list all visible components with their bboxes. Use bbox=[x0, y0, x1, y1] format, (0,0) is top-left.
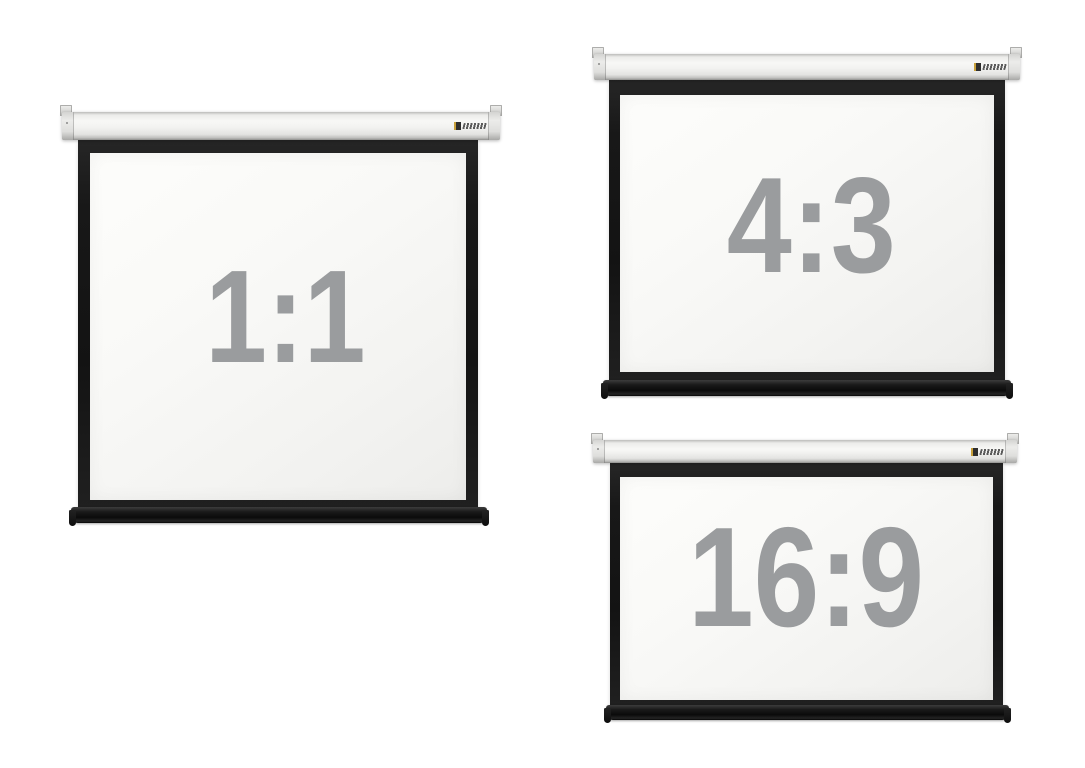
screen-housing bbox=[593, 440, 1017, 463]
brand-logo-icon bbox=[974, 63, 981, 71]
housing-endcap bbox=[1008, 54, 1020, 80]
housing-endcap bbox=[593, 440, 605, 463]
brand-wordmark-icon bbox=[979, 449, 1003, 455]
brand-logo bbox=[971, 448, 1003, 456]
weight-bar bbox=[603, 380, 1011, 396]
brand-logo-icon bbox=[454, 122, 461, 130]
screen-surface: 4:3 bbox=[620, 95, 994, 372]
screen-frame: 16:9 bbox=[610, 463, 1003, 707]
product-photo-canvas: 1:1 4:3 bbox=[0, 0, 1085, 768]
screen-frame: 4:3 bbox=[609, 80, 1005, 383]
brand-logo-icon bbox=[971, 448, 978, 456]
screw-icon bbox=[597, 448, 599, 450]
screw-icon bbox=[598, 63, 600, 65]
weight-bar bbox=[71, 507, 487, 523]
aspect-ratio-label: 16:9 bbox=[689, 507, 925, 649]
projection-screen-1-1: 1:1 bbox=[62, 105, 500, 525]
screen-housing bbox=[62, 112, 500, 140]
brand-wordmark-icon bbox=[982, 64, 1006, 70]
brand-logo bbox=[454, 122, 486, 130]
screen-surface: 1:1 bbox=[90, 153, 466, 500]
brand-logo bbox=[974, 63, 1006, 71]
aspect-ratio-label: 4:3 bbox=[726, 157, 895, 293]
brand-wordmark-icon bbox=[462, 123, 486, 129]
screen-housing bbox=[594, 54, 1020, 80]
projection-screen-16-9: 16:9 bbox=[593, 433, 1017, 720]
projection-screen-4-3: 4:3 bbox=[594, 47, 1020, 397]
housing-endcap bbox=[62, 112, 74, 140]
screw-icon bbox=[66, 122, 68, 124]
weight-bar bbox=[606, 705, 1009, 720]
housing-endcap bbox=[1005, 440, 1017, 463]
aspect-ratio-label: 1:1 bbox=[205, 251, 365, 383]
housing-endcap bbox=[488, 112, 500, 140]
housing-endcap bbox=[594, 54, 606, 80]
screen-surface: 16:9 bbox=[620, 477, 993, 700]
screen-frame: 1:1 bbox=[78, 140, 478, 510]
